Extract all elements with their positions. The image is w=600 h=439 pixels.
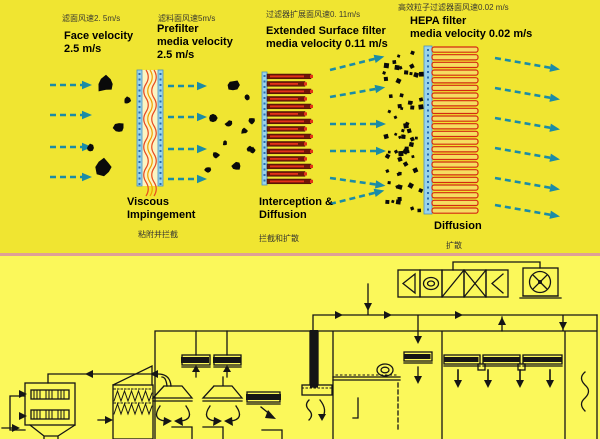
post-extended-arrows — [329, 83, 386, 101]
inlet-arrows — [50, 81, 92, 89]
inlet-arrows — [50, 143, 92, 151]
clean-air-arrows — [494, 144, 560, 164]
post-extended-arrows — [329, 174, 386, 190]
extended-surface-filter — [262, 72, 313, 185]
post-prefilter-arrows — [168, 113, 207, 121]
filtration-slide: 滤面风速2. 5m/s Face velocity 2.5 m/s 滤料面风速5… — [0, 0, 600, 439]
clean-air-arrows — [494, 54, 560, 74]
hepa-filter — [424, 46, 478, 214]
coil-icon — [114, 391, 152, 401]
hvac-system-schematic — [0, 258, 600, 439]
supply-duct — [313, 284, 597, 338]
post-extended-arrows — [329, 186, 385, 208]
cleanroom-ceiling-filter-bank — [444, 355, 562, 388]
clean-air-arrows — [494, 114, 560, 134]
floor-benches — [172, 427, 282, 439]
flex-duct-column — [302, 331, 332, 421]
stage2-en-label: Prefilter media velocity 2.5 m/s — [157, 23, 233, 62]
post-extended-arrows — [329, 52, 385, 74]
extended-mechanism-label: Interception & Diffusion — [259, 196, 333, 222]
stage4-en-label: HEPA filter media velocity 0.02 m/s — [410, 15, 532, 41]
air-handling-unit-train — [398, 262, 540, 297]
stage1-cn-velocity: 滤面风速2. 5m/s — [62, 13, 120, 24]
laminar-hoods — [153, 377, 242, 426]
humidifier-icon — [424, 278, 439, 290]
prefilter-mechanism-cn: 粘附并拦截 — [138, 229, 178, 240]
exhaust-fan-unit — [520, 268, 561, 298]
hepa-mechanism-cn: 扩散 — [446, 240, 462, 251]
coil-unit — [98, 366, 153, 439]
post-prefilter-arrows — [168, 175, 207, 183]
downflow-arrows — [454, 370, 554, 388]
prefilter-media — [137, 70, 163, 196]
filter-ahu-unit — [2, 383, 75, 439]
clean-air-arrows — [494, 174, 560, 194]
workbench — [333, 364, 400, 430]
filter-cell-icon — [442, 270, 464, 297]
pass-through-filter — [404, 336, 432, 384]
equipment-icon — [377, 364, 393, 376]
damper-icon — [492, 274, 503, 293]
stage3-cn-velocity: 过滤器扩展面风速0. 11m/s — [266, 9, 360, 20]
post-extended-arrows — [330, 147, 386, 155]
stage4-cn-velocity: 高效粒子过滤器面风速0.02 m/s — [398, 2, 509, 13]
clean-air-arrows — [494, 201, 560, 221]
inlet-arrows — [50, 173, 92, 181]
ceiling-filter-module — [247, 392, 280, 419]
prefilter-mechanism-label: Viscous Impingement — [127, 196, 195, 222]
stage1-en-label: Face velocity 2.5 m/s — [64, 30, 133, 56]
extended-mechanism-cn: 拦截和扩散 — [259, 233, 299, 244]
inlet-arrows — [50, 111, 92, 119]
post-extended-arrows — [330, 120, 386, 128]
damper-icon — [403, 274, 415, 293]
stage3-en-label: Extended Surface filter media velocity 0… — [266, 25, 388, 51]
post-prefilter-arrows — [168, 82, 207, 90]
filtration-stages-panel: 滤面风速2. 5m/s Face velocity 2.5 m/s 滤料面风速5… — [0, 0, 600, 254]
coil-icon — [114, 404, 152, 414]
clean-air-arrows — [494, 84, 560, 104]
post-prefilter-arrows — [168, 145, 207, 153]
section-divider — [0, 253, 600, 256]
ceiling-hepa-terminals — [182, 331, 241, 377]
exhaust-squiggle — [582, 372, 589, 411]
coil-cell-icon — [464, 270, 486, 297]
hepa-mechanism-label: Diffusion — [434, 220, 482, 233]
